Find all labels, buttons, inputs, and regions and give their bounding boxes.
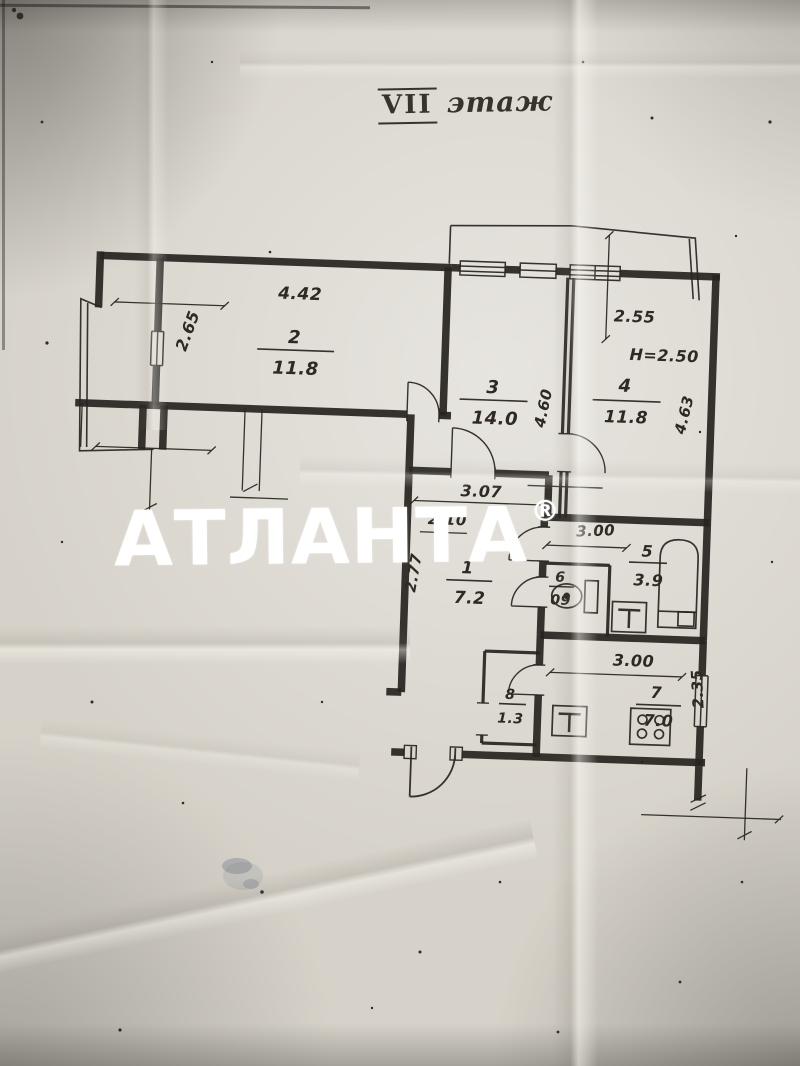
door-swing-icon [557, 433, 606, 473]
watermark: АТЛАНТА® [114, 490, 559, 584]
dim-label: 4.42 [277, 284, 323, 306]
room6-area: 09 [550, 592, 571, 609]
room2-area: 11.8 [272, 357, 319, 380]
window-icon [151, 331, 164, 365]
room8-number: 8 [505, 687, 516, 703]
floor-number-roman: VII [378, 88, 437, 125]
dim-label: 2.55 [613, 306, 655, 326]
balcony-outlines [76, 209, 702, 472]
door-swing-icon [511, 576, 548, 607]
window-icon [460, 261, 505, 277]
dim-label: 2.35 [688, 669, 708, 709]
room8-area: 1.3 [497, 711, 524, 728]
bathtub-icon [658, 539, 699, 628]
ceiling-height-label: H=2.50 [629, 345, 699, 366]
room3-area: 14.0 [471, 407, 518, 430]
photographed-floor-plan: 4.42 2 11.8 2.65 3 14.0 4.60 2.55 H=2.50… [0, 0, 800, 1066]
registered-mark-icon: ® [530, 494, 560, 528]
room3-number: 3 [486, 377, 500, 398]
room5-number: 5 [641, 541, 653, 560]
room7-area: 7.0 [643, 711, 673, 731]
door-swing-icon [451, 428, 497, 480]
room4-area: 11.8 [604, 407, 649, 429]
room2-number: 2 [288, 327, 302, 348]
dim-label: 3.00 [576, 521, 616, 540]
door-icons [394, 382, 608, 803]
watermark-text: АТЛАНТА [114, 490, 529, 583]
dim-label: 3.00 [612, 651, 654, 671]
kitchen-sink-icon [552, 705, 587, 736]
dim-label: 2.65 [172, 308, 204, 353]
sink-icon [612, 601, 647, 632]
floor-word: этаж [446, 84, 553, 119]
room5-area: 3.9 [633, 570, 663, 590]
room4-number: 4 [617, 376, 632, 397]
page-title: VIIэтаж [378, 84, 554, 124]
room7-number: 7 [650, 683, 663, 702]
dim-label: 4.60 [530, 387, 556, 430]
room1-area: 7.2 [453, 588, 485, 609]
door-opening [476, 703, 489, 735]
dim-label: 4.63 [671, 394, 698, 437]
